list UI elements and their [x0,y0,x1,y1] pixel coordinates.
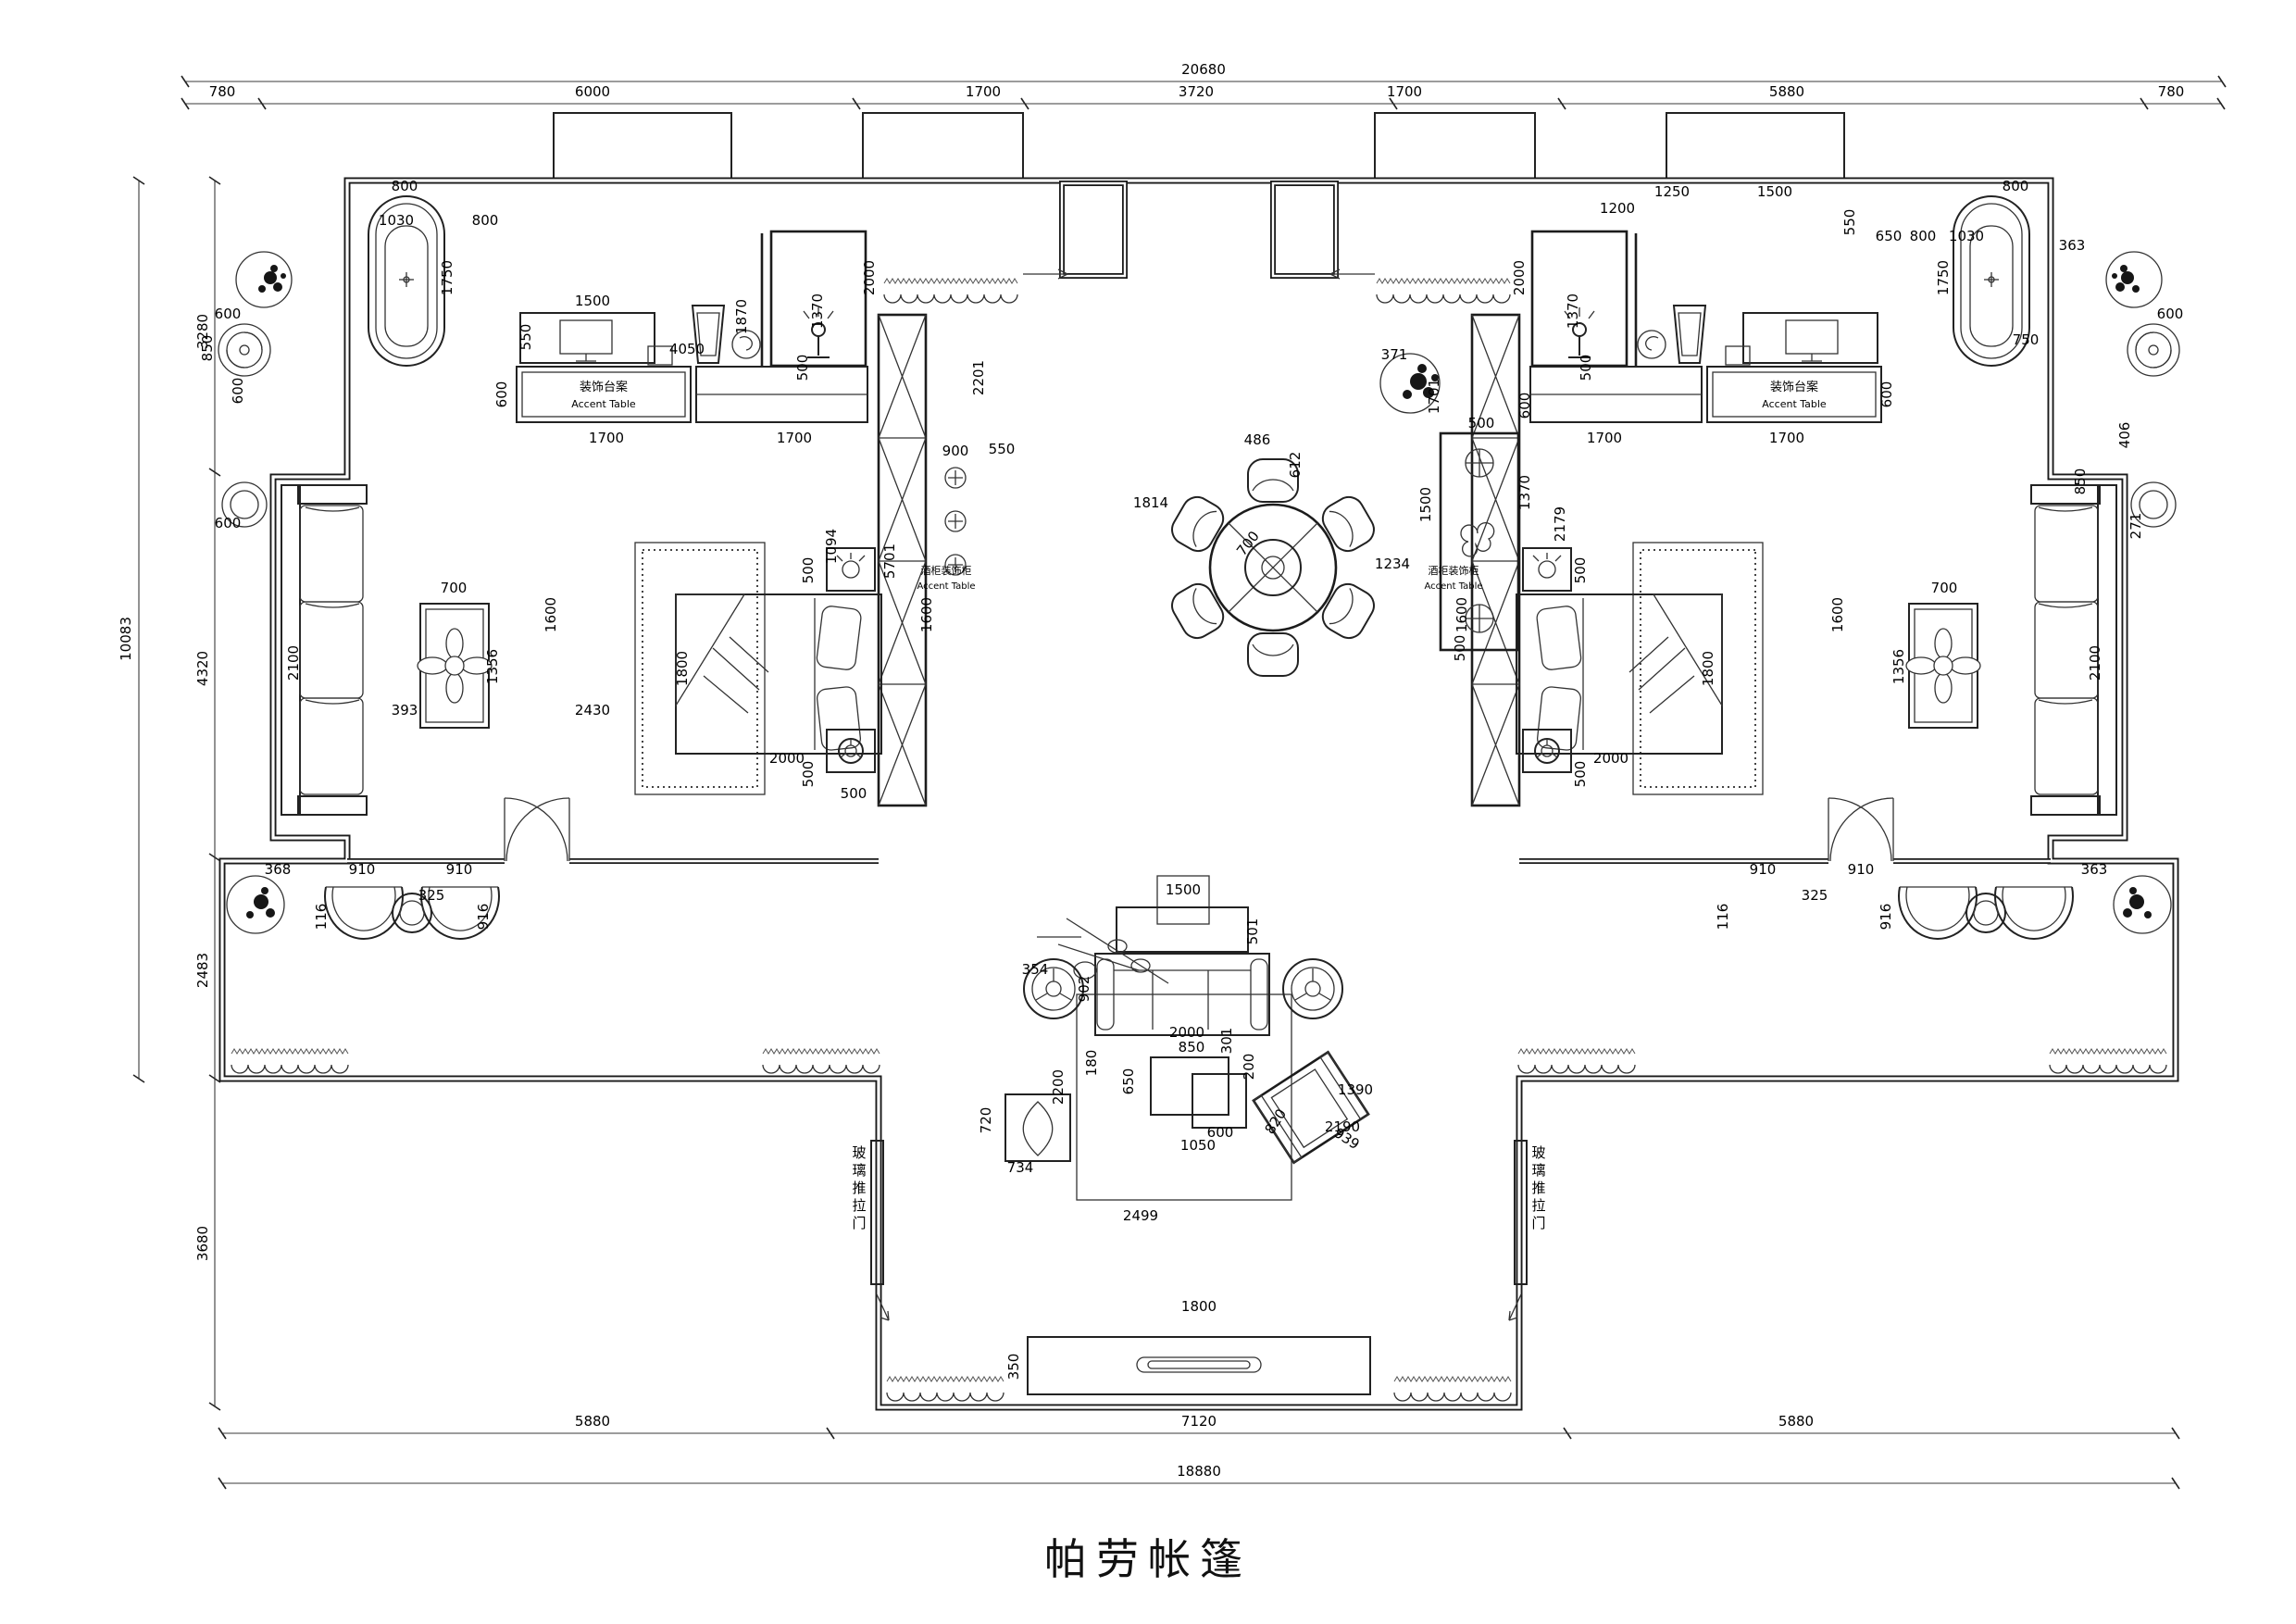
svg-text:5880: 5880 [1778,1413,1814,1430]
svg-text:1800: 1800 [1181,1298,1217,1315]
svg-text:Accent Table: Accent Table [1424,581,1482,592]
svg-text:5701: 5701 [881,543,898,579]
svg-text:850: 850 [1179,1039,1205,1056]
svg-text:850: 850 [199,335,216,362]
svg-text:500: 500 [1468,415,1495,431]
svg-text:486: 486 [1244,431,1271,448]
svg-text:116: 116 [313,904,330,931]
svg-text:1094: 1094 [823,529,840,564]
svg-text:612: 612 [1287,452,1304,479]
svg-text:363: 363 [2059,237,2086,254]
svg-text:4050: 4050 [669,341,705,357]
svg-text:玻璃推拉门: 玻璃推拉门 [852,1144,866,1231]
svg-text:550: 550 [989,441,1016,457]
svg-text:1700: 1700 [1769,430,1804,446]
svg-text:2430: 2430 [575,702,610,718]
svg-text:2000: 2000 [1593,750,1628,767]
svg-text:500: 500 [1572,557,1589,584]
svg-text:600: 600 [215,306,242,322]
svg-text:2483: 2483 [194,953,211,988]
svg-text:5880: 5880 [1769,83,1804,100]
svg-text:916: 916 [1878,904,1894,931]
window-stool [218,324,270,376]
svg-text:1700: 1700 [777,430,812,446]
svg-text:800: 800 [472,212,499,229]
svg-text:装饰台案: 装饰台案 [580,381,628,394]
svg-text:1800: 1800 [674,651,691,686]
svg-text:600: 600 [1878,381,1895,408]
svg-text:1600: 1600 [1829,597,1846,632]
svg-text:1200: 1200 [1600,200,1635,217]
svg-text:700: 700 [1931,580,1958,596]
svg-text:Accent Table: Accent Table [1762,398,1827,410]
svg-text:1250: 1250 [1654,183,1690,200]
svg-text:116: 116 [1715,904,1731,931]
svg-text:600: 600 [493,381,510,408]
svg-text:1030: 1030 [379,212,414,229]
svg-text:2201: 2201 [970,360,987,395]
svg-text:800: 800 [392,178,418,194]
svg-text:1600: 1600 [1454,597,1470,632]
svg-text:550: 550 [518,324,534,351]
svg-text:7120: 7120 [1181,1413,1217,1430]
svg-text:500: 500 [841,785,867,802]
svg-text:600: 600 [1516,393,1533,419]
drawing-title: 帕劳帐篷 [0,1526,2296,1587]
svg-text:Accent Table: Accent Table [571,398,636,410]
svg-text:650: 650 [1876,228,1903,244]
svg-text:1500: 1500 [1417,487,1434,522]
svg-text:910: 910 [1750,861,1777,878]
svg-text:3720: 3720 [1179,83,1214,100]
svg-text:1750: 1750 [1935,260,1952,295]
svg-text:734: 734 [1007,1159,1034,1176]
svg-text:800: 800 [1910,228,1937,244]
svg-text:902: 902 [1076,976,1092,1003]
svg-text:200: 200 [1241,1054,1257,1081]
svg-text:180: 180 [1083,1050,1100,1077]
svg-text:1390: 1390 [1338,1081,1373,1098]
svg-text:550: 550 [1841,209,1858,236]
svg-text:325: 325 [418,887,445,904]
svg-text:720: 720 [978,1107,994,1134]
svg-text:装饰台案: 装饰台案 [1770,381,1818,394]
svg-text:3680: 3680 [194,1226,211,1261]
svg-text:354: 354 [1022,961,1049,978]
canopy-boxes [554,113,1844,181]
svg-text:1800: 1800 [1700,651,1716,686]
svg-text:500: 500 [1578,355,1594,381]
svg-text:1356: 1356 [1890,649,1907,684]
svg-text:271: 271 [2128,513,2144,540]
svg-text:5880: 5880 [575,1413,610,1430]
svg-text:600: 600 [215,515,242,531]
svg-text:780: 780 [2158,83,2185,100]
svg-text:玻璃推拉门: 玻璃推拉门 [1531,1144,1545,1231]
svg-text:500: 500 [1572,761,1589,788]
svg-text:酒柜装饰柜: 酒柜装饰柜 [1429,564,1479,577]
svg-text:350: 350 [1005,1354,1022,1380]
svg-text:1750: 1750 [439,260,455,295]
svg-text:800: 800 [2003,178,2029,194]
svg-text:600: 600 [2157,306,2184,322]
plant [236,252,292,307]
svg-text:2100: 2100 [285,645,302,681]
svg-text:1700: 1700 [589,430,624,446]
svg-text:368: 368 [265,861,292,878]
svg-text:1030: 1030 [1949,228,1984,244]
floor-plan-canvas: 2068078060001700372017005880780100833280… [0,0,2296,1624]
svg-text:1814: 1814 [1133,494,1168,511]
svg-text:2200: 2200 [1050,1069,1067,1105]
svg-text:2000: 2000 [769,750,805,767]
svg-text:1356: 1356 [484,649,501,684]
svg-text:850: 850 [2072,468,2089,495]
svg-text:1500: 1500 [1757,183,1792,200]
svg-text:20680: 20680 [1181,61,1226,78]
svg-text:910: 910 [349,861,376,878]
svg-text:酒柜装饰柜: 酒柜装饰柜 [921,564,972,577]
svg-text:900: 900 [942,443,969,459]
svg-text:650: 650 [1120,1068,1137,1095]
svg-text:500: 500 [1452,635,1468,662]
svg-text:1370: 1370 [1516,475,1533,510]
svg-text:2179: 2179 [1552,506,1568,542]
svg-text:600: 600 [230,378,246,405]
svg-text:1600: 1600 [918,597,935,632]
svg-text:500: 500 [800,557,817,584]
floor-plan-sheet: 2068078060001700372017005880780100833280… [0,0,2296,1624]
svg-text:916: 916 [475,904,492,931]
svg-text:1370: 1370 [809,294,826,329]
svg-text:2000: 2000 [861,260,878,295]
svg-text:500: 500 [794,355,811,381]
svg-text:1500: 1500 [575,293,610,309]
svg-text:2190: 2190 [1325,1118,1360,1135]
svg-text:1600: 1600 [543,597,559,632]
svg-text:1701: 1701 [1426,379,1442,414]
svg-text:18880: 18880 [1177,1463,1221,1480]
svg-text:780: 780 [209,83,236,100]
svg-text:4320: 4320 [194,651,211,686]
svg-text:2499: 2499 [1123,1207,1158,1224]
svg-text:325: 325 [1802,887,1828,904]
svg-text:1700: 1700 [1587,430,1622,446]
svg-text:910: 910 [1848,861,1875,878]
svg-text:10083: 10083 [118,617,134,661]
svg-text:393: 393 [392,702,418,718]
svg-text:1870: 1870 [733,299,750,334]
svg-text:1234: 1234 [1375,556,1410,572]
svg-text:6000: 6000 [575,83,610,100]
svg-text:301: 301 [1218,1028,1235,1055]
svg-text:1500: 1500 [1166,881,1201,898]
svg-text:406: 406 [2116,422,2133,449]
exterior-walls [222,181,2176,1407]
svg-text:501: 501 [1244,918,1261,945]
svg-text:363: 363 [2081,861,2108,878]
svg-text:1700: 1700 [1387,83,1422,100]
svg-text:2000: 2000 [1511,260,1528,295]
svg-text:1050: 1050 [1180,1137,1216,1154]
svg-text:1370: 1370 [1565,294,1581,329]
svg-text:2100: 2100 [2087,645,2103,681]
svg-text:750: 750 [2013,331,2040,348]
svg-text:910: 910 [446,861,473,878]
svg-text:371: 371 [1381,346,1408,363]
svg-text:700: 700 [441,580,468,596]
svg-text:1700: 1700 [966,83,1001,100]
svg-text:Accent Table: Accent Table [917,581,975,592]
